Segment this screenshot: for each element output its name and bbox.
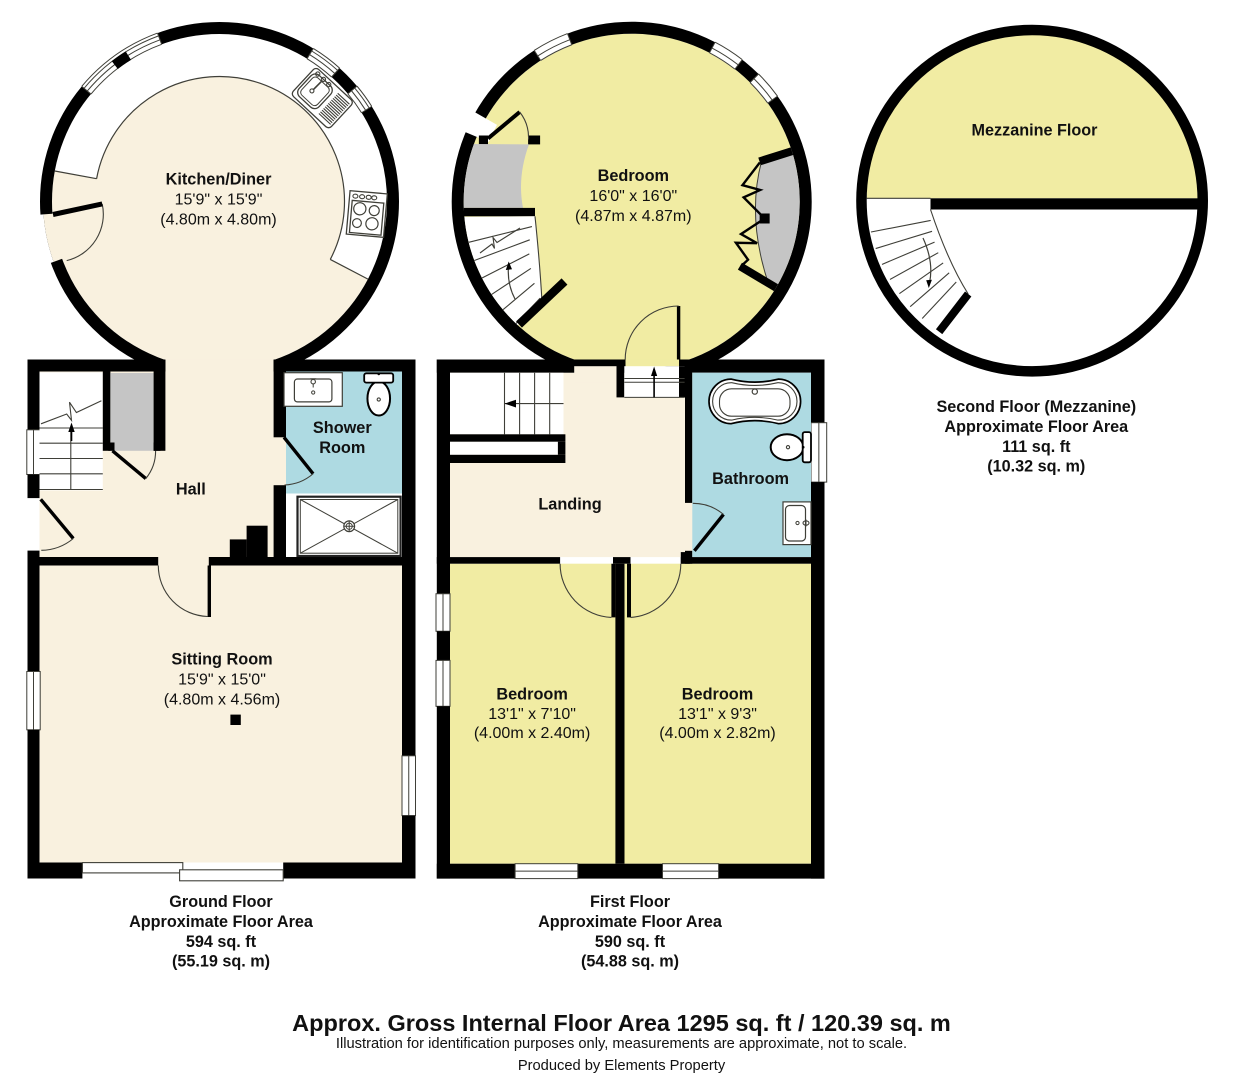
svg-text:Landing: Landing [538,496,601,514]
svg-text:Kitchen/Diner: Kitchen/Diner [166,170,273,188]
svg-text:Approximate Floor Area: Approximate Floor Area [944,418,1129,436]
svg-text:13'1" x 7'10": 13'1" x 7'10" [488,706,576,723]
svg-text:594 sq. ft: 594 sq. ft [186,933,257,951]
svg-text:(10.32 sq. m): (10.32 sq. m) [987,458,1085,476]
svg-text:(4.80m x 4.80m): (4.80m x 4.80m) [160,211,276,228]
svg-text:Bedroom: Bedroom [496,686,567,704]
svg-text:Bedroom: Bedroom [598,167,669,185]
svg-text:Produced by Elements Property: Produced by Elements Property [518,1058,726,1074]
svg-text:13'1" x 9'3": 13'1" x 9'3" [678,706,757,723]
svg-text:Shower: Shower [313,419,372,437]
svg-text:16'0" x 16'0": 16'0" x 16'0" [589,188,677,205]
svg-text:(4.80m x 4.56m): (4.80m x 4.56m) [164,692,280,709]
svg-text:Approximate Floor Area: Approximate Floor Area [129,913,314,931]
svg-text:Hall: Hall [176,481,206,499]
svg-text:15'9" x 15'9": 15'9" x 15'9" [175,191,263,208]
svg-text:Ground Floor: Ground Floor [169,893,273,911]
svg-text:First Floor: First Floor [590,893,671,911]
svg-text:111 sq. ft: 111 sq. ft [1002,438,1071,456]
svg-text:Illustration for identificatio: Illustration for identification purposes… [336,1036,907,1052]
svg-text:(4.00m x 2.82m): (4.00m x 2.82m) [659,725,775,742]
svg-text:(4.00m x 2.40m): (4.00m x 2.40m) [474,725,590,742]
svg-text:(55.19 sq. m): (55.19 sq. m) [172,953,270,971]
svg-text:Approx. Gross Internal Floor A: Approx. Gross Internal Floor Area 1295 s… [292,1010,951,1036]
svg-text:15'9" x 15'0": 15'9" x 15'0" [178,672,266,689]
svg-text:Bedroom: Bedroom [682,686,753,704]
svg-text:Approximate Floor Area: Approximate Floor Area [538,913,723,931]
svg-text:Mezzanine Floor: Mezzanine Floor [972,122,1099,140]
svg-text:(4.87m x 4.87m): (4.87m x 4.87m) [575,208,691,225]
svg-text:590 sq. ft: 590 sq. ft [595,933,666,951]
svg-text:Room: Room [319,439,365,457]
svg-text:(54.88 sq. m): (54.88 sq. m) [581,953,679,971]
svg-text:Second Floor (Mezzanine): Second Floor (Mezzanine) [936,398,1136,416]
svg-text:Bathroom: Bathroom [712,470,789,488]
svg-text:Sitting Room: Sitting Room [171,651,272,669]
